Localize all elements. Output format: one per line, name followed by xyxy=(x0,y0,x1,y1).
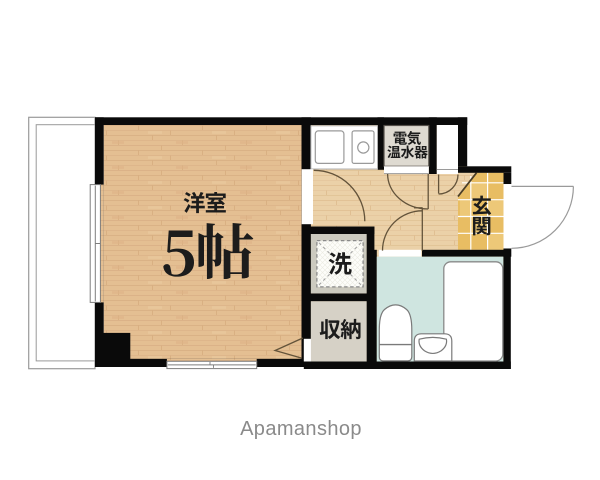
svg-text:Apamanshop: Apamanshop xyxy=(240,418,362,440)
